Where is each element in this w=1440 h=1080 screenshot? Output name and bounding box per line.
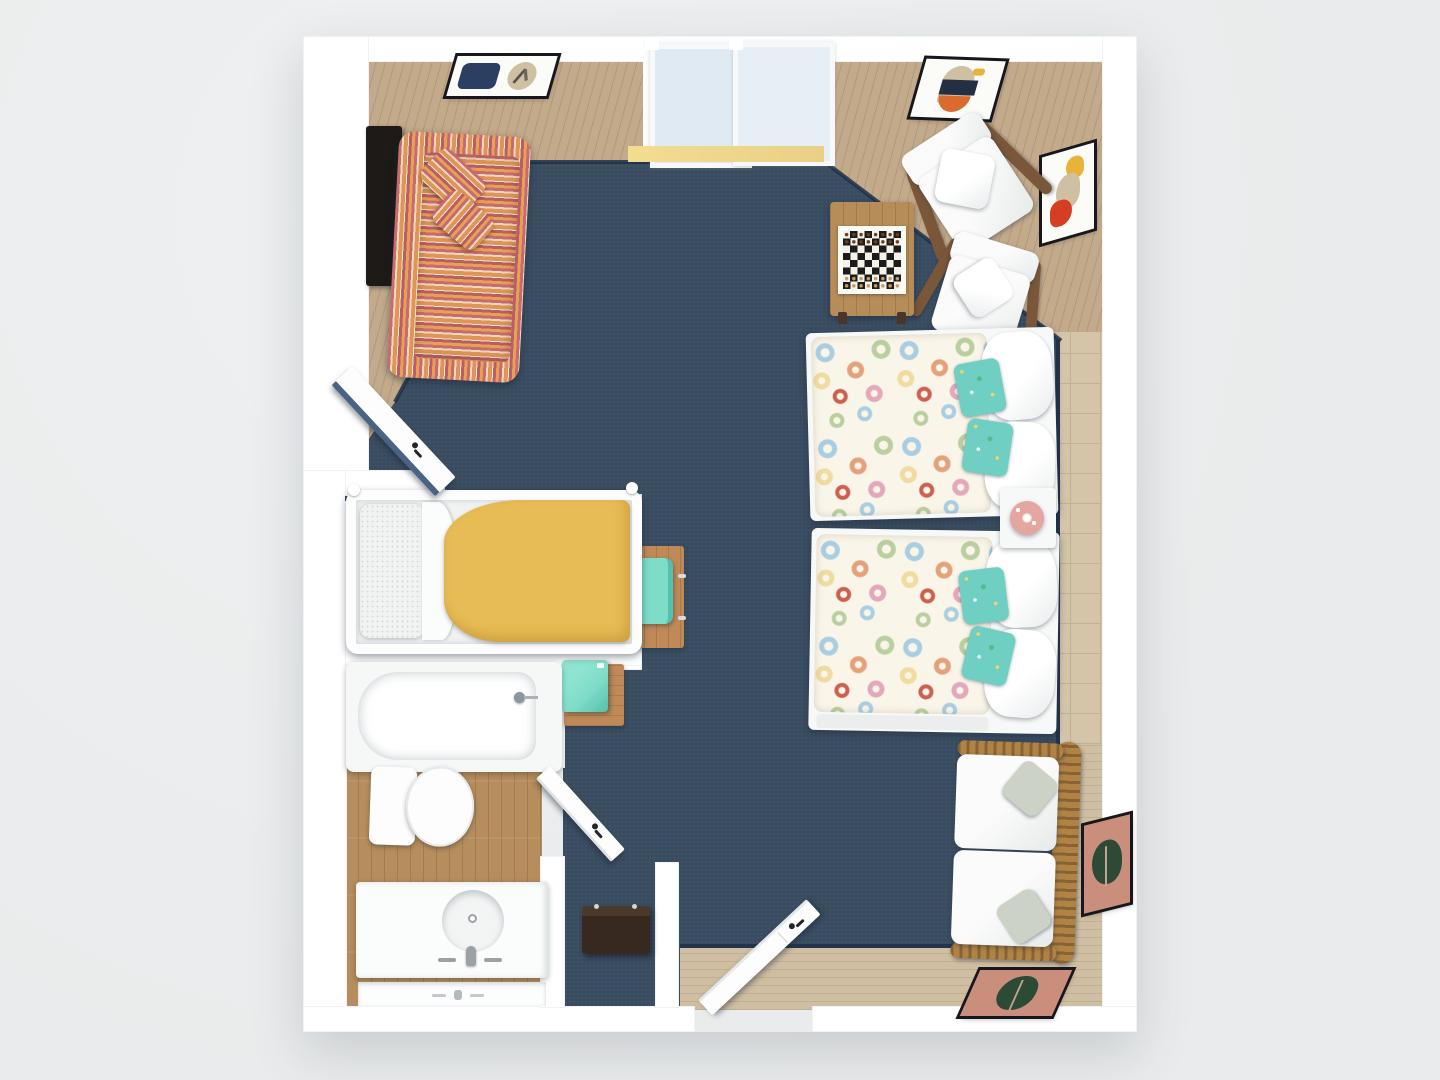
- bed-pillow-teal-1: [958, 566, 1010, 625]
- door-handle-icon: [788, 922, 796, 930]
- plant-leaf: [1092, 836, 1122, 887]
- arch-orange: [935, 95, 971, 112]
- bed-duvet-seashell: [811, 333, 992, 518]
- blob-red: [1050, 197, 1072, 229]
- nightstand: [1000, 488, 1056, 548]
- mirror-handle-reflection: [432, 994, 446, 997]
- art-navy-block: [456, 63, 501, 89]
- mini-fridge-teal: [562, 660, 608, 712]
- toilet: [369, 764, 476, 852]
- door-handle-icon: [594, 829, 603, 838]
- chess-pieces-light: [843, 275, 901, 289]
- artwork-botanical-right: [1084, 814, 1130, 913]
- daybed-post: [348, 484, 360, 496]
- bed-foot-platform: [816, 714, 988, 731]
- vanity-mirror: [358, 982, 546, 1006]
- plant-stem: [1105, 846, 1107, 886]
- tub-basin: [358, 672, 536, 760]
- chessboard: [838, 226, 906, 294]
- lamp-finial: [1022, 513, 1032, 523]
- faucet-handle-left: [438, 958, 456, 962]
- table-leg: [838, 312, 847, 324]
- glass-cap-right: [729, 38, 743, 50]
- bed-duvet-seashell: [814, 534, 993, 715]
- shower-arm: [524, 696, 538, 699]
- drawer-pull: [678, 574, 686, 578]
- bench-knob: [632, 904, 637, 909]
- daybed-blanket-yellow: [444, 500, 630, 642]
- yellow-baseboard: [628, 146, 824, 162]
- bench-cushion-2: [951, 850, 1056, 948]
- luggage-bench: [582, 906, 650, 954]
- door-handle-icon: [413, 449, 422, 458]
- sink-drain: [468, 914, 477, 923]
- door-seam: [777, 932, 787, 943]
- arch-navy: [938, 79, 978, 95]
- daybed-pillow: [360, 504, 424, 638]
- art-leaf-circle: [504, 62, 540, 90]
- artwork-navy-leaf: [446, 56, 557, 96]
- artwork-red-yellow: [1042, 143, 1094, 244]
- chair-pillow: [933, 147, 996, 210]
- bench-knob: [594, 904, 599, 909]
- arch-yellow: [972, 68, 986, 75]
- wall-bottom-left-segment: [303, 1006, 695, 1032]
- striped-sofa: [387, 131, 532, 384]
- toilet-bowl: [405, 765, 476, 847]
- fridge-label: [597, 663, 604, 668]
- bed-pillow-teal-1: [953, 357, 1008, 418]
- guest-bed-2: [808, 528, 1059, 734]
- drawer-pull: [678, 616, 686, 620]
- faucet-handle-right: [484, 958, 502, 962]
- glass-cap-left: [645, 38, 659, 50]
- daybed-yellow: [346, 490, 642, 654]
- vanity-sink: [356, 882, 548, 978]
- bed-pillow-teal-2: [961, 417, 1014, 477]
- table-leg: [897, 312, 906, 324]
- wall-hall-stub: [655, 862, 679, 1008]
- floor-plan-render: [0, 0, 1440, 1080]
- bathtub: [346, 662, 562, 772]
- daybed-post: [626, 482, 638, 494]
- mirror-faucet-reflection: [454, 990, 462, 1000]
- game-table: [830, 202, 914, 316]
- door-handle-icon: [795, 919, 804, 928]
- mirror-handle-reflection: [470, 994, 484, 997]
- artwork-arch: [910, 59, 1006, 120]
- slat-bench-sofa: [950, 742, 1081, 960]
- faucet-spout: [466, 946, 476, 966]
- chess-pieces-dark: [843, 231, 901, 245]
- wall-left-lower: [303, 470, 347, 1032]
